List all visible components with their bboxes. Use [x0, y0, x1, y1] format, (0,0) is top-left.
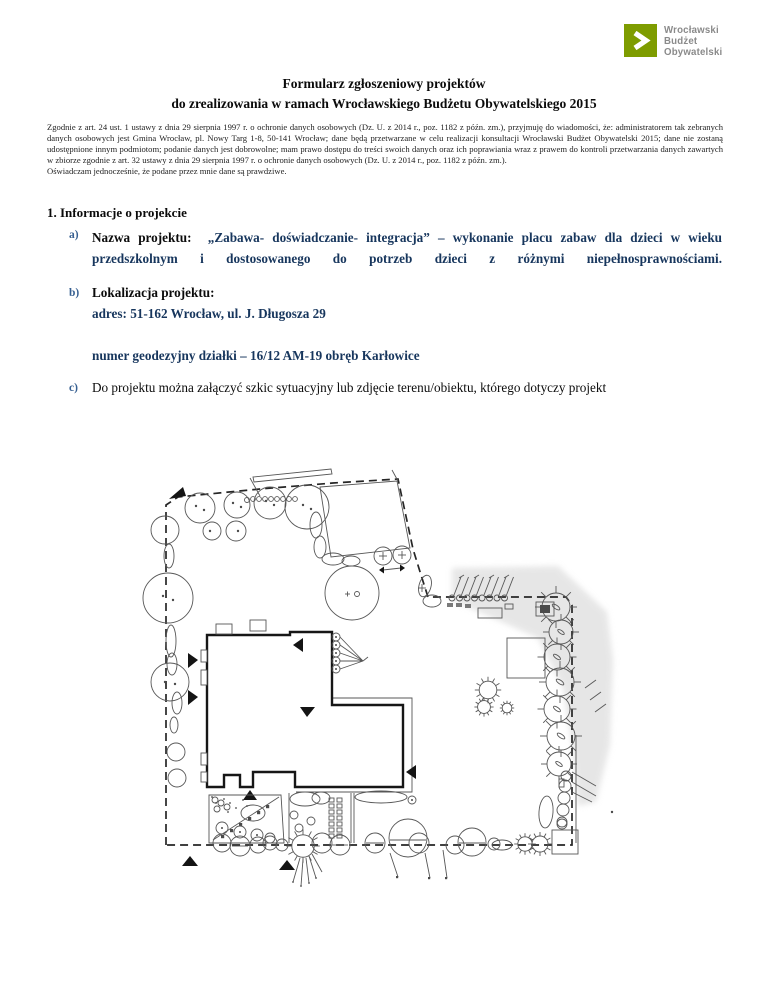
item-a-label: Nazwa projektu: [92, 230, 191, 245]
legal-notice: Zgodnie z art. 24 ust. 1 ustawy z dnia 2… [47, 122, 723, 177]
form-title: Formularz zgłoszeniowy projektów do zrea… [0, 74, 768, 114]
form-title-line-1: Formularz zgłoszeniowy projektów [0, 74, 768, 94]
item-a-project-name: Nazwa projektu: „Zabawa- doświadczanie- … [92, 227, 722, 269]
item-b-marker: b) [69, 287, 79, 299]
form-title-line-2: do zrealizowania w ramach Wrocławskiego … [0, 94, 768, 114]
wbo-logo: Wrocławski Budżet Obywatelski [624, 24, 727, 58]
wbo-logo-wordmark: Wrocławski Budżet Obywatelski [664, 25, 722, 58]
logo-line-3: Obywatelski [664, 47, 722, 58]
site-plan-sketch [138, 452, 632, 896]
item-b-label: Lokalizacja projektu: [92, 285, 214, 301]
chevron-right-icon [624, 24, 657, 57]
legal-declaration: Oświadczam jednocześnie, że podane przez… [47, 166, 723, 177]
item-c-marker: c) [69, 382, 78, 394]
section-1-heading: 1. Informacje o projekcie [47, 205, 187, 221]
item-b-address: adres: 51-162 Wrocław, ul. J. Długosza 2… [92, 306, 326, 322]
item-b-plot-number: numer geodezyjny działki – 16/12 AM-19 o… [92, 348, 420, 364]
legal-notice-body: Zgodnie z art. 24 ust. 1 ustawy z dnia 2… [47, 122, 723, 166]
item-c-text: Do projektu można załączyć szkic sytuacy… [92, 380, 722, 396]
site-plan-drawing [138, 452, 632, 896]
item-a-marker: a) [69, 229, 79, 241]
